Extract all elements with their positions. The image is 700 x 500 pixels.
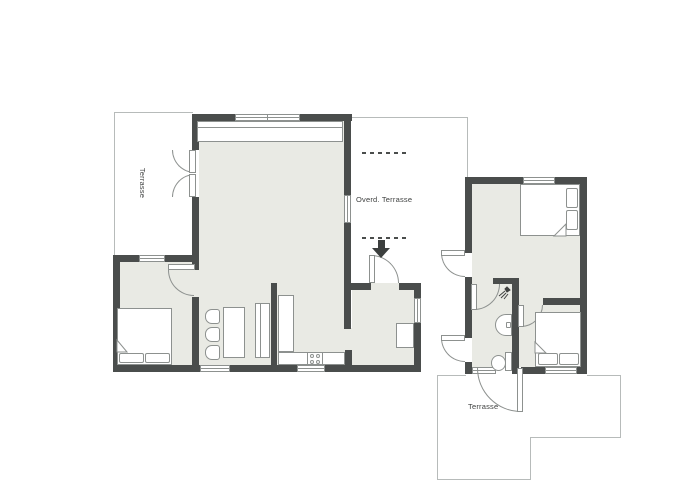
entry-cabinet [396, 323, 414, 348]
tall-cabinet [278, 295, 294, 352]
bottom-terrace-label: Terrasse [468, 402, 498, 412]
wall [414, 283, 421, 298]
blanket-fold [535, 342, 546, 353]
pillow [559, 353, 579, 365]
wall [192, 197, 199, 260]
entrance-arrow-icon [378, 240, 385, 248]
window [545, 367, 577, 374]
door-leaf [189, 174, 196, 197]
terrace-outline [437, 479, 531, 480]
door-swing-arc [441, 253, 465, 277]
window [414, 298, 421, 323]
wall [345, 350, 352, 365]
stove-icon [307, 352, 323, 365]
chair [205, 327, 220, 342]
terrace-outline [437, 375, 438, 480]
dashed-boundary-line [362, 237, 406, 239]
floor-patch [344, 328, 352, 350]
door-leaf [471, 284, 477, 310]
door-leaf [168, 264, 195, 270]
wall [113, 365, 201, 372]
wall [580, 177, 587, 374]
pillow [538, 353, 558, 365]
sink-tap [506, 322, 511, 328]
terrace-outline [114, 112, 193, 113]
wardrobe-line [198, 127, 342, 128]
terrace-outline [620, 375, 621, 438]
door-leaf [518, 305, 524, 327]
dashed-boundary-line [362, 152, 406, 154]
wall [543, 298, 587, 305]
wall [344, 114, 351, 195]
blanket-fold [554, 224, 566, 236]
door-leaf [369, 255, 375, 283]
dining-table [223, 307, 245, 358]
kitchen-partition-wall [271, 283, 277, 365]
terrace-outline [530, 437, 621, 438]
window [297, 365, 325, 372]
door-swing-arc [371, 255, 399, 283]
wall [230, 365, 297, 372]
wall [465, 177, 472, 253]
wall [192, 297, 199, 365]
wall [345, 283, 371, 290]
sideboard-line [260, 304, 261, 357]
sideboard [255, 303, 270, 358]
door-swing-arc [441, 338, 465, 362]
door-leaf [517, 368, 523, 412]
wall [577, 367, 587, 374]
pillow [145, 353, 170, 363]
terrace-outline [437, 375, 466, 376]
sink-icon [495, 314, 512, 336]
wardrobe [197, 121, 343, 142]
floor-patch [371, 283, 399, 291]
covered-terrace-label: Overd. Terrasse [356, 195, 412, 205]
shower-icon [497, 285, 512, 301]
pillow [566, 210, 578, 230]
wall [465, 367, 472, 374]
terrace-outline [530, 437, 531, 480]
wall [465, 177, 523, 184]
pillow [119, 353, 144, 363]
toilet-icon [491, 355, 506, 371]
wall [414, 323, 421, 372]
left-terrace-label: Terrasse [137, 163, 147, 203]
chair [205, 345, 220, 360]
wall [521, 367, 545, 374]
window [200, 365, 230, 372]
wall [344, 223, 351, 329]
terrace-outline [352, 117, 468, 118]
window [344, 195, 351, 223]
entrance-arrow-icon [372, 248, 390, 258]
toilet-icon [505, 352, 512, 371]
floor-plan: Terrasse [0, 0, 700, 500]
terrace-outline [467, 117, 468, 178]
door-leaf [189, 150, 196, 173]
window-mullion [267, 115, 268, 120]
door-leaf [441, 250, 465, 256]
terrace-outline [114, 112, 115, 256]
pillow [566, 188, 578, 208]
wall [325, 365, 421, 372]
terrace-outline [587, 375, 621, 376]
chair [205, 309, 220, 324]
blanket-fold [117, 340, 128, 352]
window [139, 255, 165, 262]
door-leaf [441, 335, 465, 341]
window [523, 177, 555, 184]
